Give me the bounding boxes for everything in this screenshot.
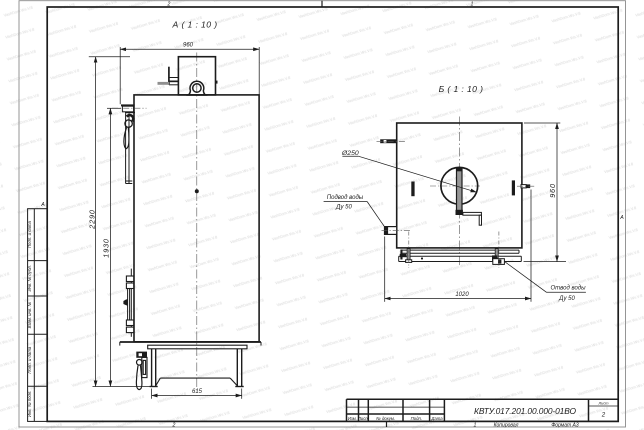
svg-text:Изм.: Изм.: [348, 416, 357, 421]
svg-text:Б ( 1 : 10 ): Б ( 1 : 10 ): [439, 84, 484, 94]
svg-text:1: 1: [474, 422, 477, 428]
svg-text:Отвод воды: Отвод воды: [550, 285, 586, 291]
svg-text:Формат А3: Формат А3: [551, 423, 579, 429]
svg-text:Взам. инв. №: Взам. инв. №: [27, 301, 32, 328]
svg-text:КВТУ.017.201.00.000-01ВО: КВТУ.017.201.00.000-01ВО: [474, 406, 577, 416]
svg-text:960: 960: [183, 43, 194, 49]
svg-text:Дата: Дата: [430, 416, 443, 421]
svg-text:2290: 2290: [87, 209, 96, 230]
svg-text:А ( 1 : 10 ): А ( 1 : 10 ): [172, 20, 218, 30]
svg-text:615: 615: [192, 389, 203, 395]
svg-text:Ø250: Ø250: [341, 150, 359, 157]
svg-text:Инв. № подл.: Инв. № подл.: [27, 390, 32, 417]
svg-text:Подп. и дата: Подп. и дата: [27, 221, 32, 249]
svg-text:Копировал: Копировал: [494, 423, 519, 429]
svg-text:1: 1: [471, 2, 474, 8]
svg-text:960: 960: [548, 183, 557, 198]
svg-text:Инв. № дубл.: Инв. № дубл.: [27, 265, 32, 291]
svg-text:А: А: [40, 202, 45, 208]
svg-text:Подвод воды: Подвод воды: [327, 195, 364, 201]
svg-text:2: 2: [167, 2, 171, 8]
svg-text:Лист: Лист: [597, 401, 609, 406]
svg-text:Ду 50: Ду 50: [558, 296, 575, 302]
svg-text:2: 2: [172, 422, 176, 428]
svg-text:Ду 50: Ду 50: [335, 205, 352, 211]
svg-text:2: 2: [601, 411, 606, 418]
svg-text:А: А: [619, 215, 624, 221]
svg-text:Лист: Лист: [357, 416, 369, 421]
svg-text:1020: 1020: [455, 292, 469, 298]
svg-text:Подп.: Подп.: [411, 416, 422, 421]
svg-text:№ докум.: № докум.: [376, 416, 395, 421]
svg-text:1930: 1930: [102, 238, 111, 258]
svg-text:Подп. и дата: Подп. и дата: [27, 346, 32, 374]
